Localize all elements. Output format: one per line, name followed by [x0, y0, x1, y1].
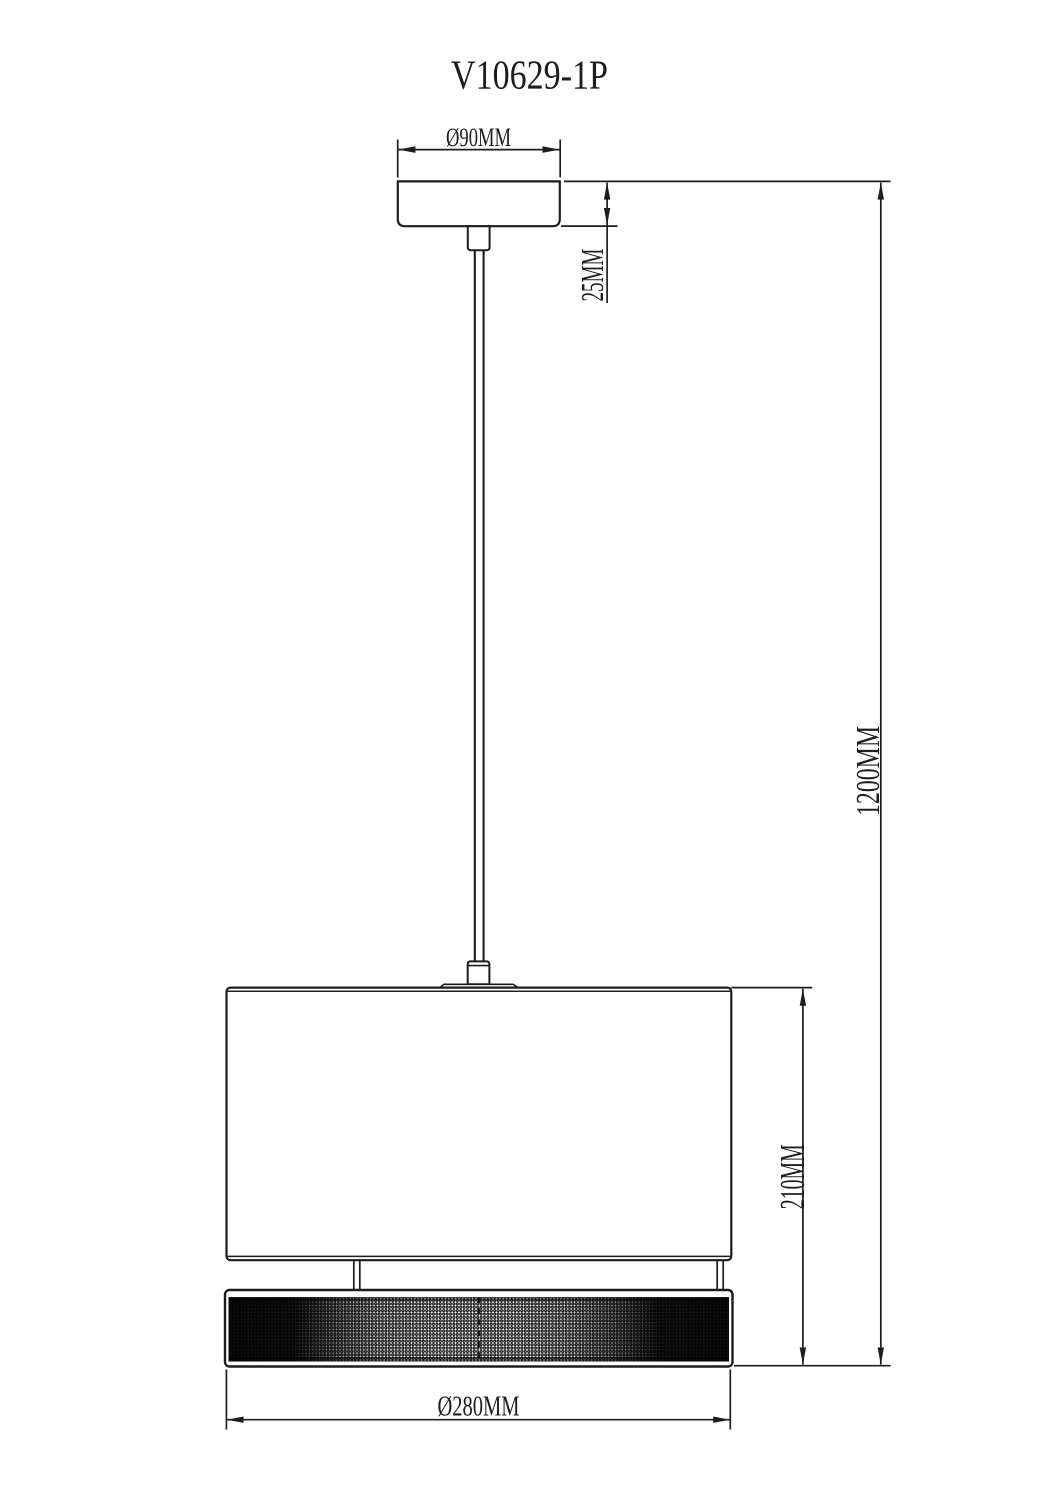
svg-text:V10629-1P: V10629-1P [451, 52, 608, 98]
svg-text:Ø90MM: Ø90MM [446, 123, 511, 152]
svg-text:Ø280MM: Ø280MM [438, 1390, 520, 1422]
svg-text:1200MM: 1200MM [850, 726, 887, 816]
svg-text:25MM: 25MM [574, 249, 610, 302]
svg-text:210MM: 210MM [773, 1144, 812, 1209]
